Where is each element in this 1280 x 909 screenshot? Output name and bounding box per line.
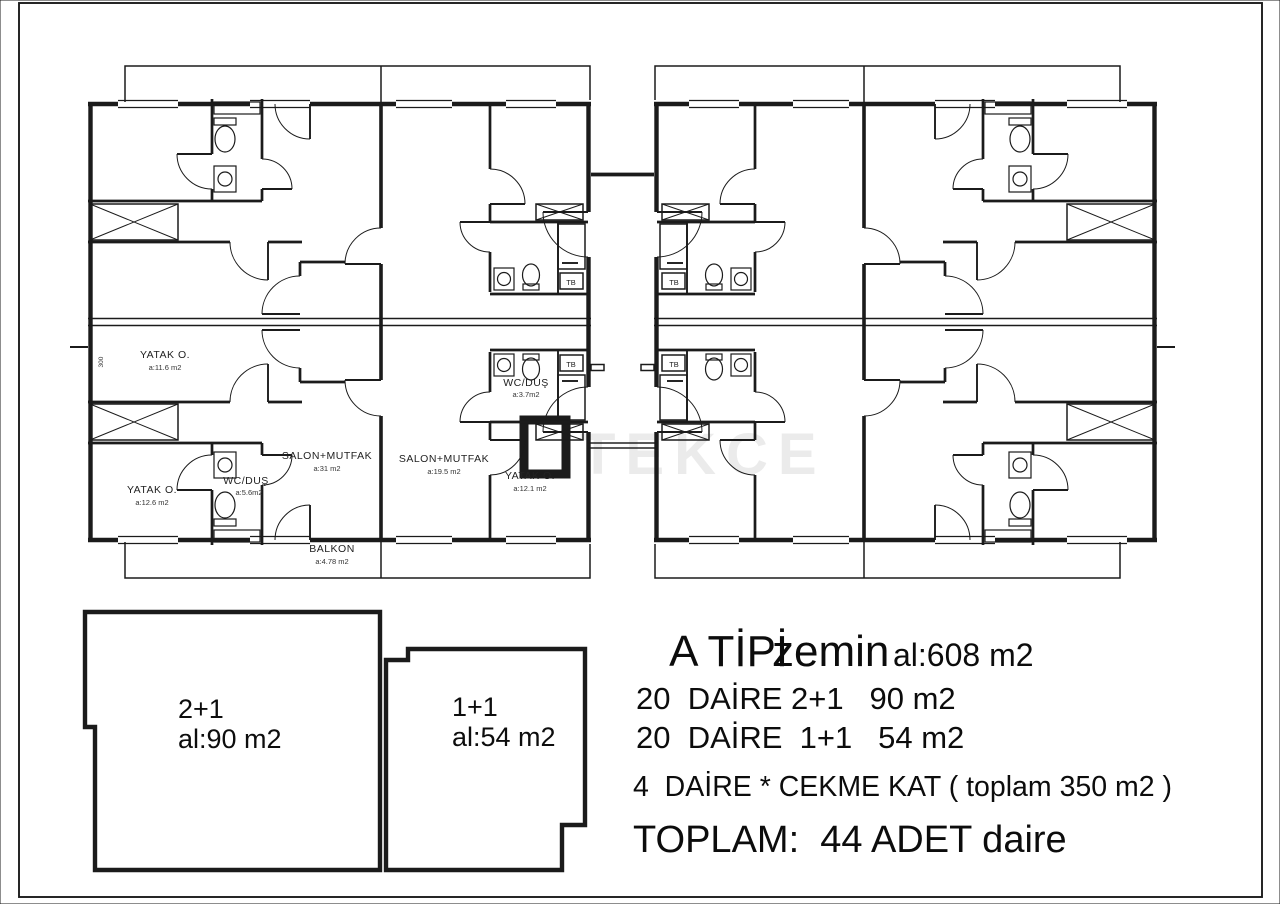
- floor-plan-sheet: TEKCE: [0, 0, 1280, 904]
- apartment-block-right: [588, 66, 1175, 578]
- unit-2plus1-area: al:90 m2: [178, 724, 282, 754]
- room-label: BALKON: [309, 543, 355, 555]
- room-area: a:31 m2: [313, 464, 340, 473]
- tb-label: TB: [669, 360, 679, 369]
- summary-block: A TİPİ zemin al:608 m2 20 DAİRE 2+1 90 m…: [633, 627, 1172, 861]
- room-area: a:4.78 m2: [315, 557, 348, 566]
- tb-label: TB: [566, 360, 576, 369]
- total-area: al:608 m2: [893, 637, 1034, 673]
- room-label: YATAK O.: [140, 349, 190, 361]
- room-area: a:3.7m2: [512, 390, 539, 399]
- unit-2plus1-type: 2+1: [178, 694, 224, 724]
- unit-outline-1plus1: [386, 649, 585, 870]
- tb-label: TB: [566, 278, 576, 287]
- dimension-label: 300: [98, 356, 105, 367]
- room-label: YATAK O.: [127, 484, 177, 496]
- block-half-mirrored: [88, 66, 591, 322]
- tb-label: TB: [669, 278, 679, 287]
- room-label: SALON+MUTFAK: [399, 453, 489, 465]
- watermark-text: TEKCE: [580, 422, 827, 487]
- room-area: a:19.5 m2: [427, 467, 460, 476]
- type-title: A TİPİ: [669, 627, 788, 676]
- room-label: YATAK O.: [505, 470, 555, 482]
- unit-diagrams: 2+1 al:90 m2 1+1 al:54 m2: [85, 612, 585, 870]
- unit-1plus1-type: 1+1: [452, 692, 498, 722]
- room-area: a:12.6 m2: [135, 498, 168, 507]
- summary-line-penthouse: 4 DAİRE * CEKME KAT ( toplam 350 m2 ): [633, 771, 1172, 803]
- room-label: WC/DUŞ: [223, 475, 269, 487]
- balcony-outline: [125, 542, 590, 578]
- room-area: a:12.1 m2: [513, 484, 546, 493]
- room-area: a:5.6m2: [235, 488, 262, 497]
- floor-title: zemin: [772, 627, 889, 676]
- summary-line-2plus1: 20 DAİRE 2+1 90 m2: [636, 681, 956, 716]
- watermark-bracket: [524, 420, 566, 474]
- room-label: WC/DUŞ: [503, 377, 549, 389]
- summary-total: TOPLAM: 44 ADET daire: [633, 819, 1067, 861]
- toilet-icon: [215, 492, 235, 518]
- summary-title-line: A TİPİ zemin al:608 m2: [638, 627, 1056, 676]
- room-area: a:11.6 m2: [149, 363, 182, 372]
- unit-1plus1-area: al:54 m2: [452, 722, 556, 752]
- summary-line-1plus1: 20 DAİRE 1+1 54 m2: [636, 720, 964, 755]
- watermark: TEKCE: [524, 420, 827, 487]
- room-label: SALON+MUTFAK: [282, 450, 372, 462]
